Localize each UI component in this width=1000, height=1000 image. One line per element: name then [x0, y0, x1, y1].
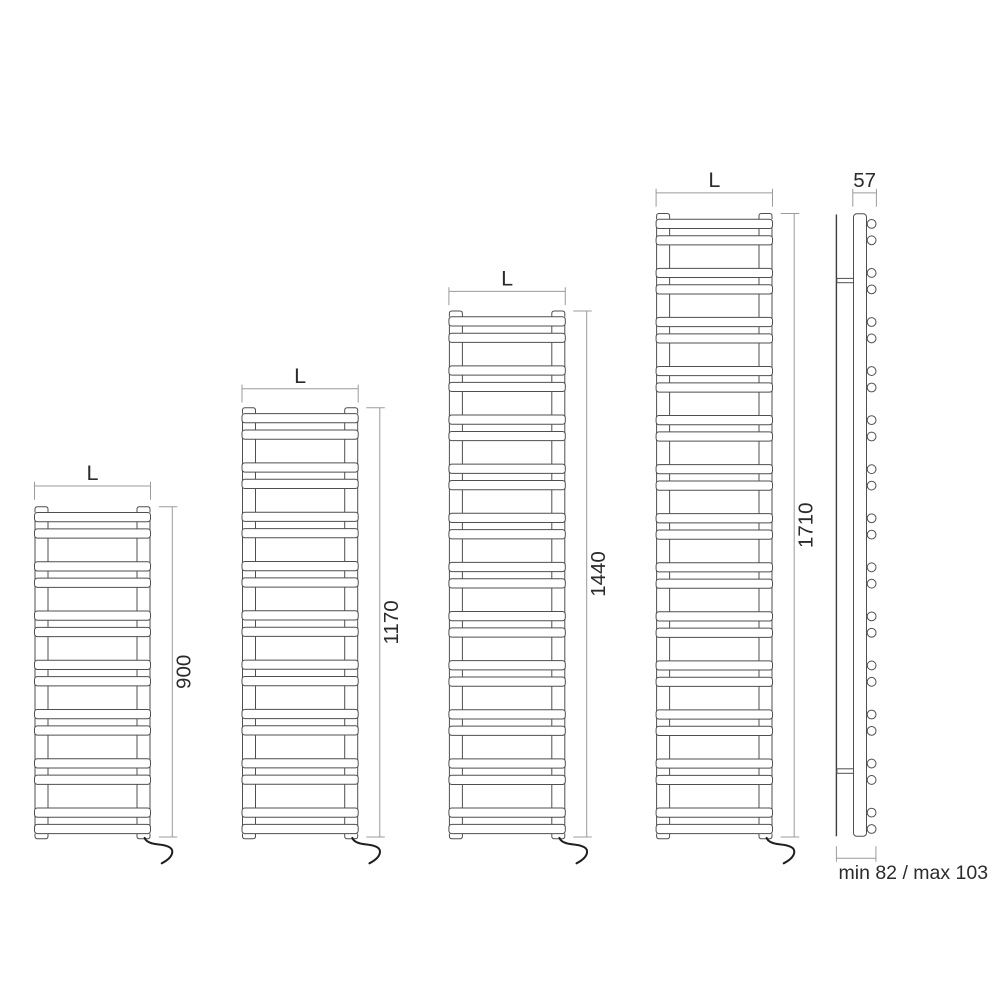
svg-text:L: L: [708, 168, 720, 192]
svg-text:1440: 1440: [587, 551, 610, 597]
svg-text:L: L: [501, 266, 513, 290]
svg-text:900: 900: [173, 655, 196, 689]
svg-text:min 82 / max 103: min 82 / max 103: [839, 862, 989, 884]
svg-text:57: 57: [853, 169, 876, 192]
svg-text:L: L: [87, 461, 99, 485]
svg-text:1710: 1710: [795, 502, 818, 548]
svg-text:1170: 1170: [380, 600, 403, 644]
svg-text:L: L: [294, 364, 306, 388]
